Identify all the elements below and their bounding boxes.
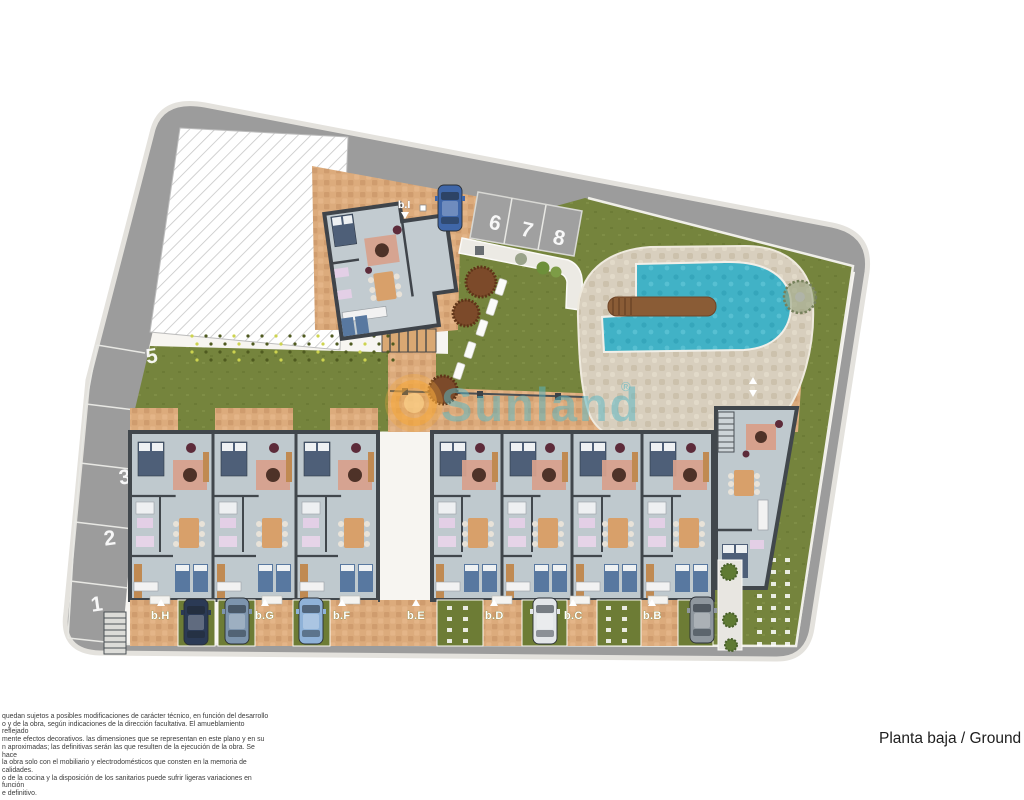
unit-label-bB: b.B: [643, 610, 662, 622]
plan-caption: Planta baja / Ground f: [879, 730, 1024, 748]
stairs-villaA: [718, 412, 734, 452]
car: [181, 599, 211, 645]
stairs-bH: [104, 612, 126, 654]
site-plan: 6 7 8 5 4 3 2 1: [0, 0, 1024, 800]
sun-logo-core: [404, 393, 424, 413]
unit-label-bF: b.F: [333, 610, 350, 622]
gravel-path-right: [718, 560, 742, 651]
tree-round: [466, 267, 496, 297]
watermark-brand: Sunland: [441, 378, 640, 431]
disclaimer-line: e definitivo.: [2, 790, 270, 798]
disclaimer-line: mente efectos decorativos. las dimension…: [2, 736, 270, 744]
bush: [551, 267, 562, 278]
unit-label-bD: b.D: [485, 610, 504, 622]
planter: [475, 246, 484, 255]
car: [435, 185, 465, 231]
shrub: [515, 253, 527, 265]
disclaimer-line: o de la cocina y la disposición de los s…: [2, 775, 270, 790]
unit-label-bE: b.E: [407, 610, 425, 622]
car: [530, 598, 560, 644]
central-walkway: [378, 600, 437, 646]
disclaimer-line: quedan sujetos a posibles modificaciones…: [2, 713, 270, 721]
tree-round: [453, 300, 479, 326]
unit-label-bH: b.H: [151, 610, 170, 622]
pool-wood-deck: [608, 297, 716, 316]
unit-label-bC: b.C: [564, 610, 583, 622]
tree-trunk: [795, 292, 805, 302]
sunland-watermark: Sunland ®: [385, 374, 640, 432]
gate-marker: [420, 205, 426, 211]
disclaimer-line: la obra solo con el mobiliario y electro…: [2, 759, 270, 774]
floorplan-page: 6 7 8 5 4 3 2 1: [0, 0, 1024, 800]
car: [296, 598, 326, 644]
disclaimer-line: o y de la obra, según indicaciones de la…: [2, 721, 270, 736]
disclaimer-line: n aproximadas; las definitivas serán las…: [2, 744, 270, 759]
unit-label-bG: b.G: [255, 610, 274, 622]
car: [687, 597, 717, 643]
unit-label-bI: b.I: [398, 199, 410, 211]
disclaimer-text: quedan sujetos a posibles modificaciones…: [2, 713, 270, 798]
rear-yards: [130, 408, 378, 432]
car: [222, 598, 252, 644]
registered-mark: ®: [621, 379, 631, 394]
bush: [537, 262, 550, 275]
